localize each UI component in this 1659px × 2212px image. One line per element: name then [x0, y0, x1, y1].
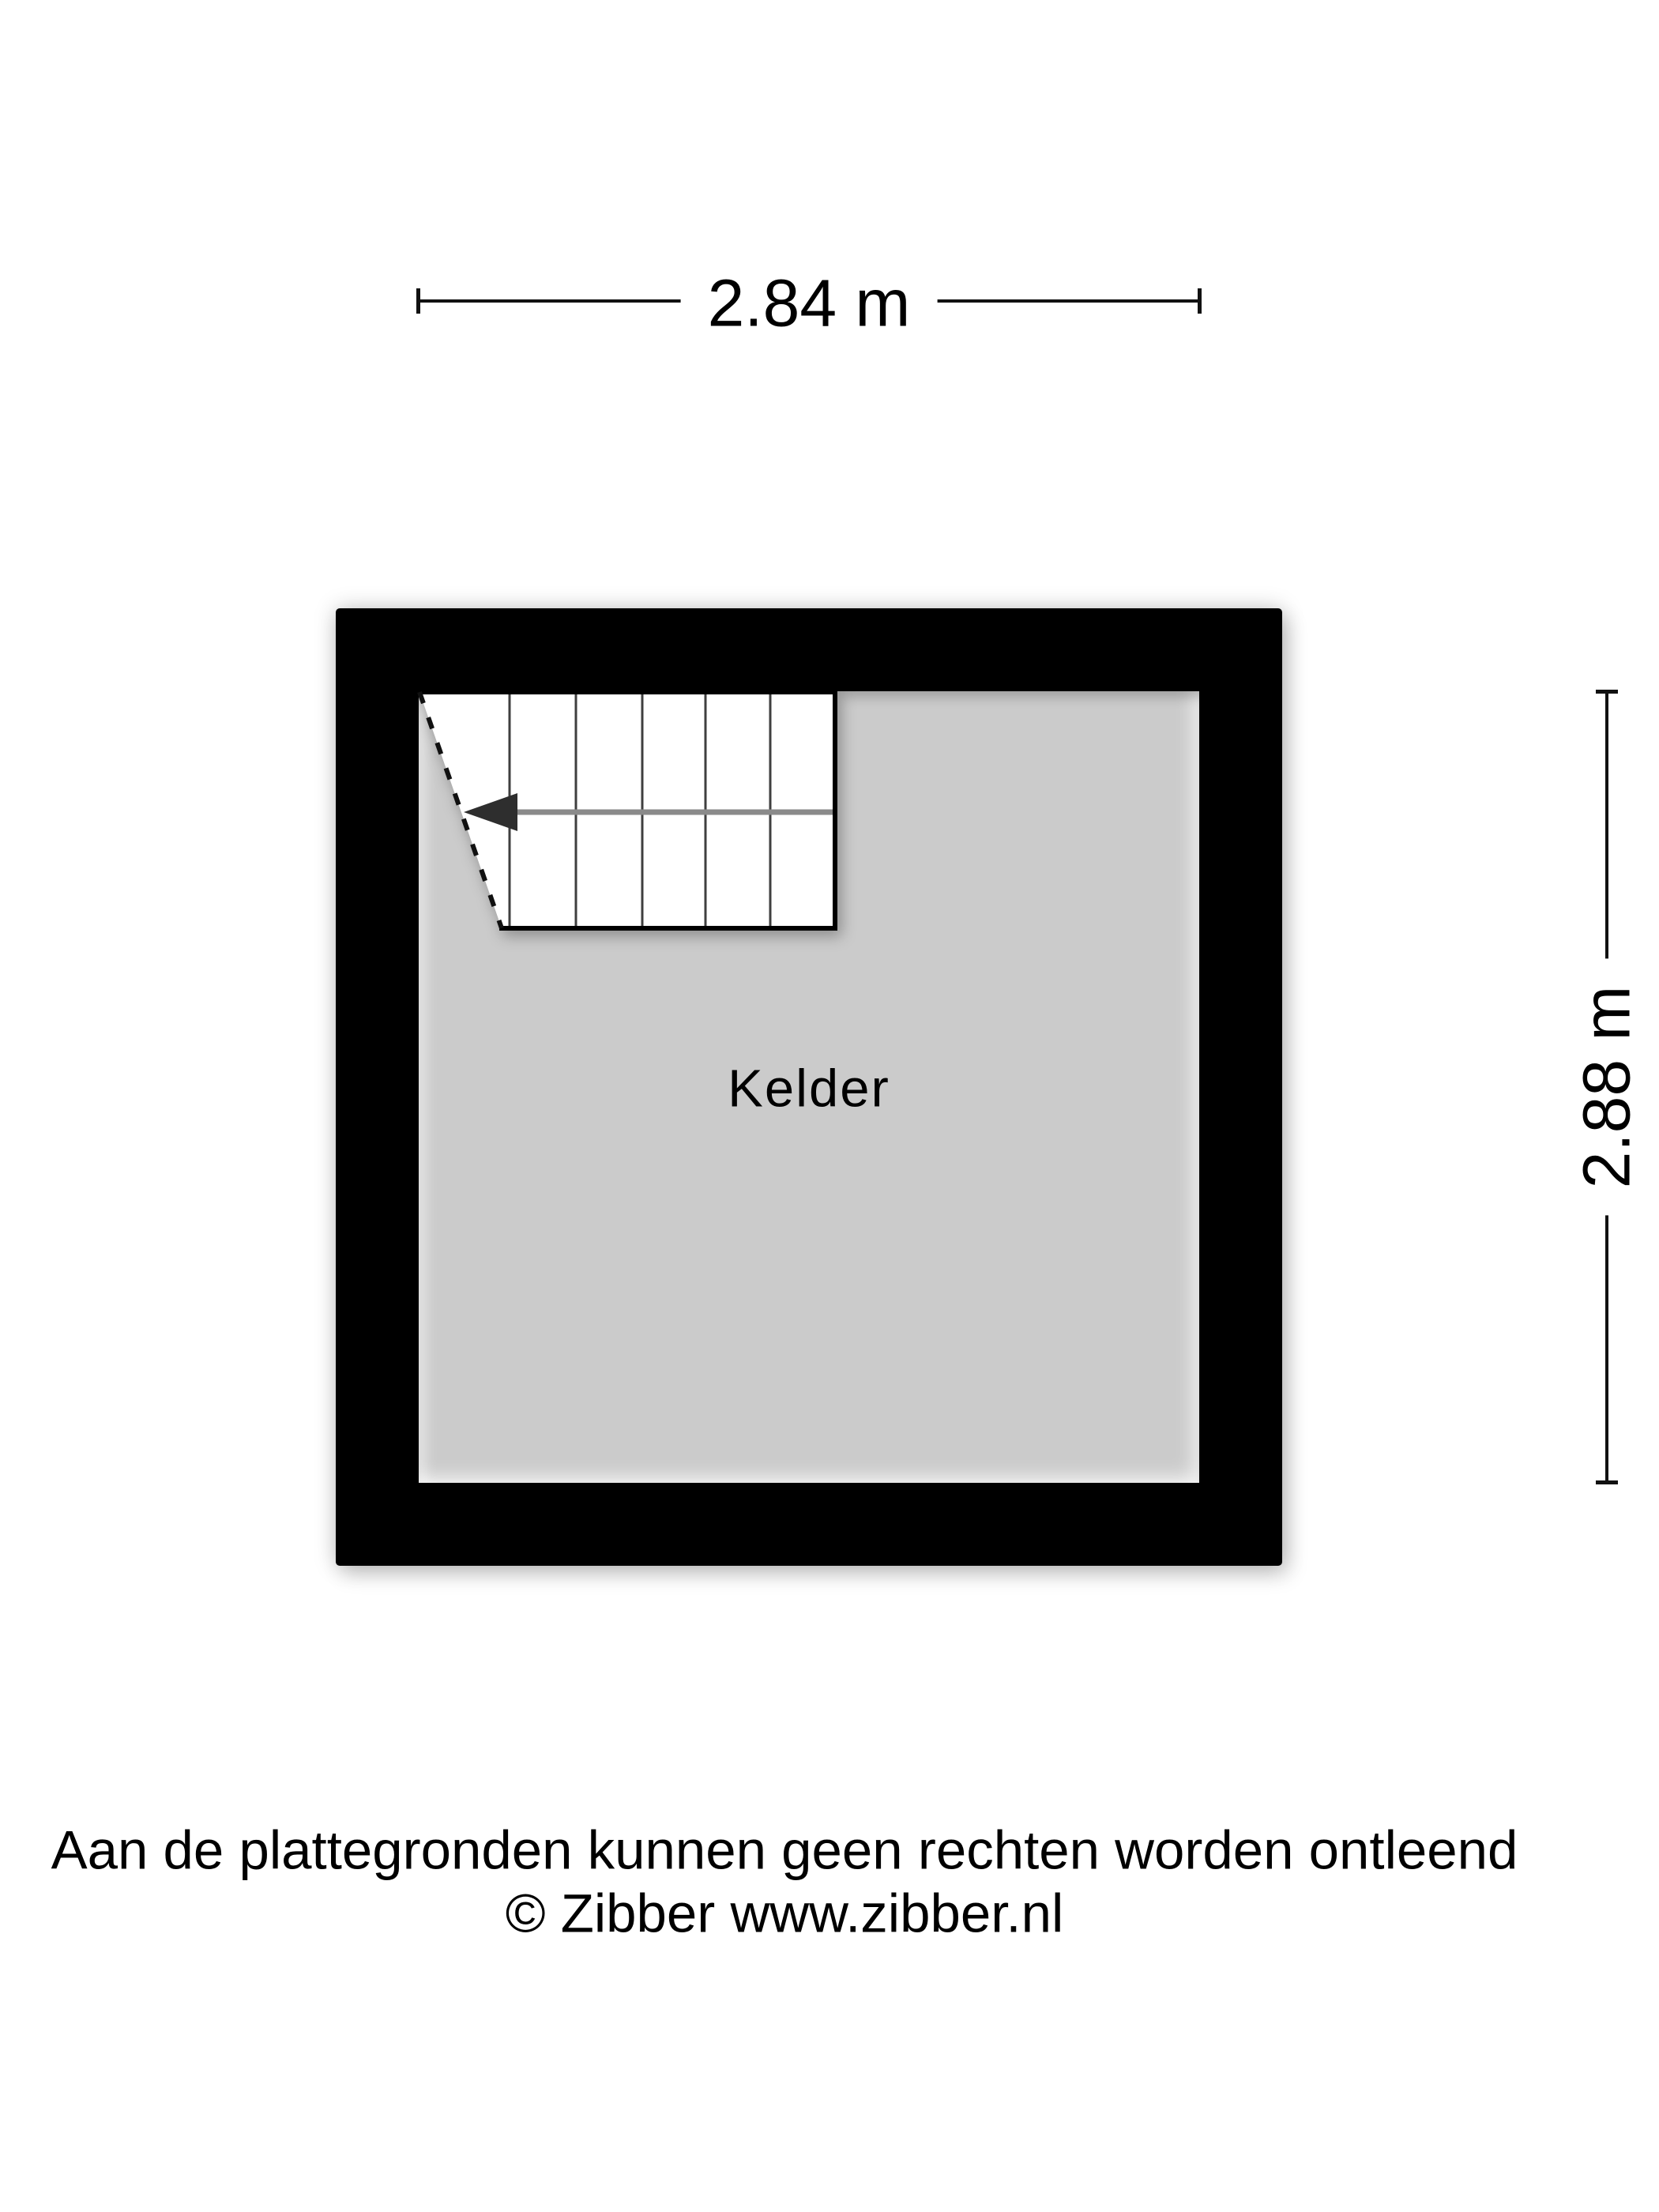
copyright-text: © Zibber www.zibber.nl	[506, 1883, 1064, 1945]
width-dimension-cap-right	[1198, 288, 1202, 314]
height-dimension-cap-bottom	[1596, 1480, 1618, 1484]
disclaimer-text: Aan de plattegronden kunnen geen rechten…	[51, 1819, 1518, 1882]
room-label: Kelder	[728, 1059, 890, 1119]
floorplan-page: 2.84 m Kelder 2.88 m Aan de plattegronde…	[0, 0, 1659, 2212]
height-dimension-cap-top	[1596, 690, 1618, 694]
width-dimension-label: 2.84 m	[681, 265, 938, 342]
height-dimension-label: 2.88 m	[1569, 959, 1646, 1216]
staircase	[415, 687, 841, 936]
width-dimension-cap-left	[416, 288, 420, 314]
